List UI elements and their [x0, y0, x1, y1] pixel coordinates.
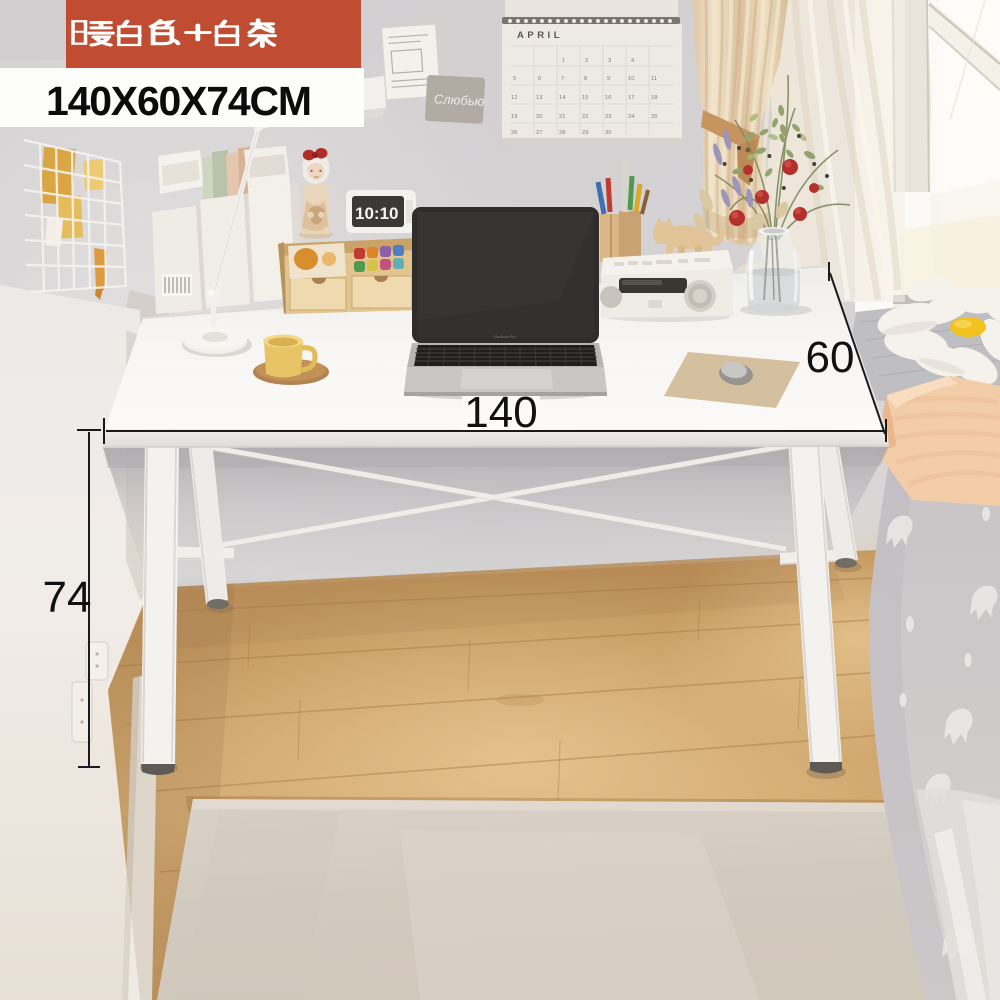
svg-text:MacBook Pro: MacBook Pro: [494, 335, 516, 339]
svg-text:29: 29: [582, 130, 588, 136]
svg-text:27: 27: [536, 130, 542, 136]
svg-text:2: 2: [585, 58, 588, 64]
svg-text:140X60X74CM: 140X60X74CM: [46, 78, 311, 124]
svg-text:18: 18: [651, 95, 657, 101]
svg-text:9: 9: [607, 76, 610, 82]
svg-text:11: 11: [651, 76, 657, 82]
svg-text:140: 140: [464, 388, 537, 437]
svg-text:16: 16: [605, 95, 611, 101]
svg-text:22: 22: [582, 114, 588, 120]
svg-text:5: 5: [513, 76, 516, 82]
svg-text:6: 6: [538, 76, 541, 82]
svg-text:12: 12: [511, 95, 517, 101]
svg-text:30: 30: [605, 130, 611, 136]
svg-text:8: 8: [584, 76, 587, 82]
svg-text:26: 26: [511, 130, 517, 136]
svg-text:10:10: 10:10: [355, 204, 398, 223]
svg-text:28: 28: [559, 130, 565, 136]
svg-text:Слюбью: Слюбью: [434, 91, 485, 109]
svg-text:3: 3: [608, 58, 611, 64]
svg-text:60: 60: [806, 333, 855, 382]
svg-text:20: 20: [536, 114, 542, 120]
svg-text:24: 24: [628, 114, 635, 120]
svg-text:25: 25: [651, 114, 657, 120]
svg-text:17: 17: [628, 95, 634, 101]
svg-text:14: 14: [559, 95, 566, 101]
svg-text:1: 1: [562, 58, 565, 64]
svg-text:13: 13: [536, 95, 542, 101]
svg-text:7: 7: [561, 76, 564, 82]
svg-text:21: 21: [559, 114, 565, 120]
svg-text:10: 10: [628, 76, 634, 82]
svg-text:74: 74: [43, 573, 92, 622]
svg-text:23: 23: [605, 114, 611, 120]
svg-text:15: 15: [582, 95, 588, 101]
svg-text:APRIL: APRIL: [517, 30, 563, 41]
svg-text:19: 19: [511, 114, 517, 120]
